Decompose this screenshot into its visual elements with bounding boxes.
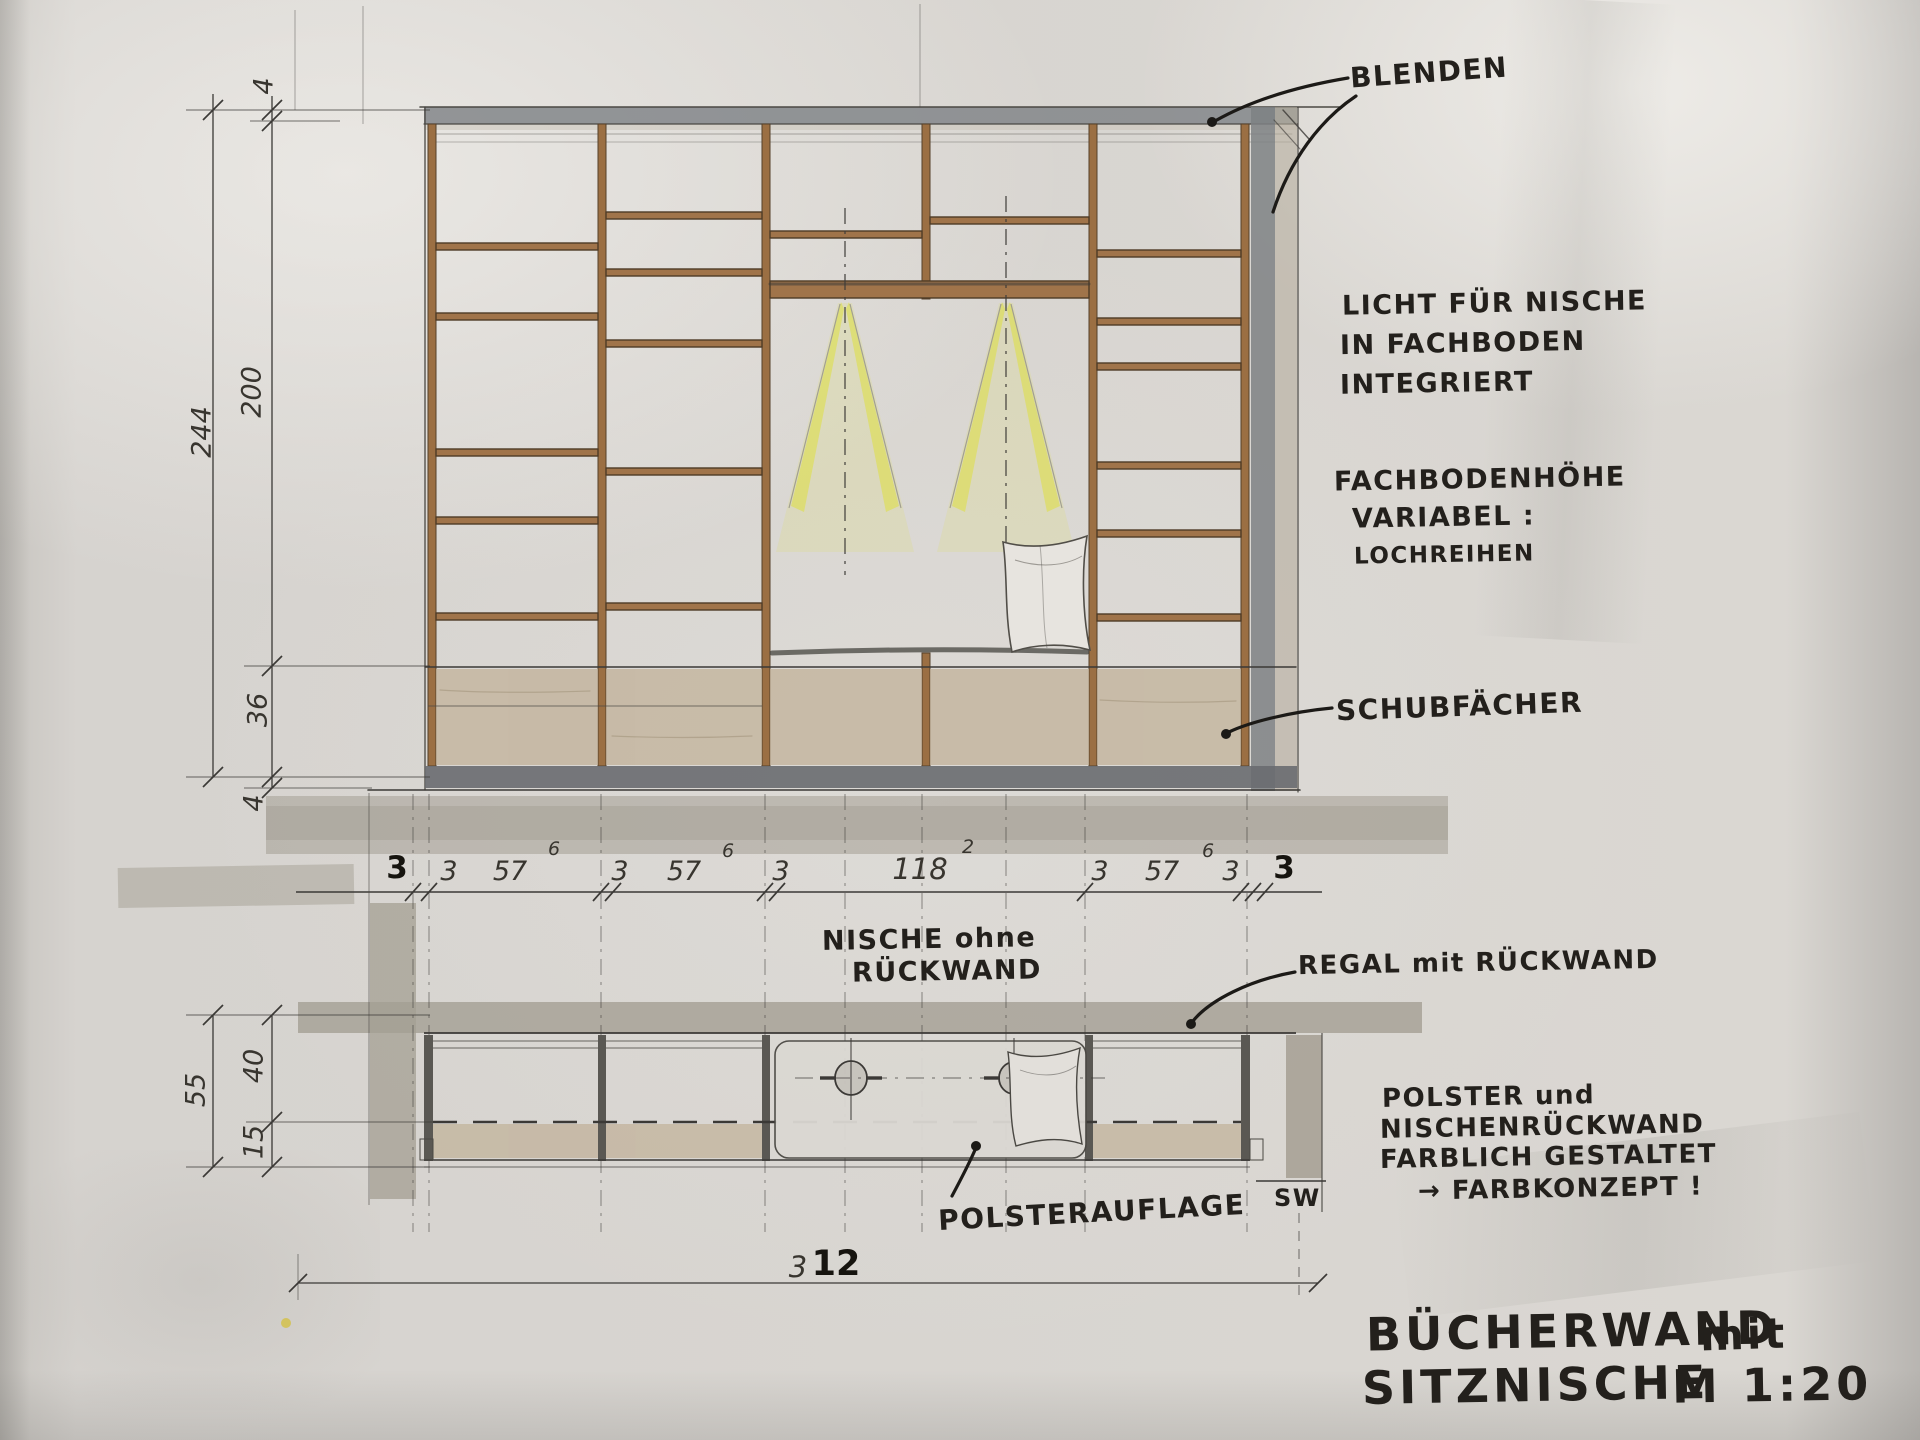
plinth: [425, 766, 1297, 788]
chain-dim-sup: 6: [1202, 840, 1214, 862]
annotation-regal: REGAL mit RÜCKWAND: [1298, 945, 1659, 981]
dim-total-width: [289, 1254, 1327, 1300]
dim-drawer-36: 36: [243, 693, 274, 727]
drawing-title-line2: SITZNISCHE: [1362, 1355, 1710, 1415]
annotation-polster-line4: → FARBKONZEPT !: [1418, 1172, 1704, 1207]
chain-dim-sup: 6: [722, 840, 734, 862]
light-beam: [937, 196, 1075, 575]
annotation-licht-line1: LICHT FÜR NISCHE: [1342, 285, 1647, 321]
chain-dim-value: 3: [1273, 850, 1295, 886]
dim-depth-55: 55: [181, 1073, 212, 1107]
annotation-nische-line2: RÜCKWAND: [852, 954, 1042, 988]
drawer-fronts: [436, 669, 1241, 765]
chain-dim-value: 3: [772, 856, 789, 887]
drawing-title-mit: mit: [1699, 1308, 1788, 1360]
dim-plinth-4: 4: [239, 794, 270, 811]
dim-total-244: 244: [187, 406, 218, 458]
pillow-plan: [1008, 1048, 1082, 1146]
annotation-nische-line1: NISCHE ohne: [822, 922, 1037, 957]
pillow-elevation: [1003, 536, 1090, 652]
chain-dim-value: 3: [1222, 856, 1239, 887]
dim-depth-40: 40: [239, 1049, 270, 1083]
dim-seat-15: 15: [239, 1125, 270, 1159]
chain-dim-value: 3: [1091, 856, 1108, 887]
annotation-licht-line2: IN FACHBODEN: [1340, 326, 1586, 361]
chain-dim-value: 57: [667, 856, 701, 887]
chain-dim-value: 118: [892, 852, 947, 886]
annotation-polster-line3: FARBLICH GESTALTET: [1380, 1139, 1718, 1175]
chain-dim-sup: 2: [962, 836, 974, 858]
chain-dim-value: 3: [611, 856, 628, 887]
dim-blende-top: 4: [249, 77, 280, 94]
chain-dim-value: 57: [493, 856, 527, 887]
dim-height-200: 200: [237, 366, 268, 418]
light-beam: [776, 208, 914, 575]
annotation-sw: SW: [1274, 1184, 1321, 1212]
chain-dim-value: 3: [440, 856, 457, 887]
shelves-right-bay: [1097, 250, 1241, 621]
chain-dim-sup: 6: [548, 838, 560, 860]
annotation-fachboden-line2: VARIABEL :: [1352, 500, 1536, 534]
dim-total-width-bold: 12: [812, 1244, 861, 1284]
chain-dim-value: 57: [1145, 856, 1179, 887]
chain-dim-value: 3: [386, 850, 408, 886]
shelves-bay2: [606, 212, 762, 610]
annotation-polster-line1: POLSTER und: [1382, 1080, 1596, 1114]
dim-total-width-prefix: 3: [789, 1250, 807, 1284]
annotation-fachboden-line1: FACHBODENHÖHE: [1334, 461, 1626, 497]
drawing-scale: M 1:20: [1672, 1356, 1873, 1413]
shelves-bay1: [436, 243, 598, 620]
paper-sketch: BLENDEN LICHT FÜR NISCHE IN FACHBODEN IN…: [0, 0, 1920, 1440]
annotation-fachboden-line3: LOCHREIHEN: [1354, 540, 1535, 569]
annotation-licht-line3: INTEGRIERT: [1340, 366, 1534, 400]
